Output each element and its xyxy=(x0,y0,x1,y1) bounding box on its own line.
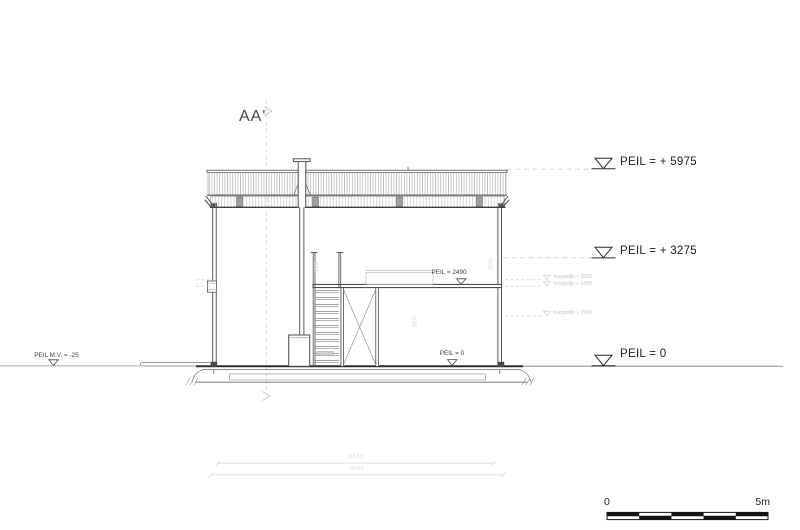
stove xyxy=(289,335,310,366)
roof xyxy=(205,167,509,208)
height-line-label-2600: hoogtelijn + 2600 xyxy=(554,275,592,280)
vertical-dim-stair: 1000 xyxy=(315,261,320,273)
foundation xyxy=(186,366,534,385)
scale-bar xyxy=(607,512,768,519)
section-label: AA' xyxy=(239,109,266,125)
braced-panel xyxy=(341,288,379,367)
section-cut-line xyxy=(263,100,273,401)
scale-bar-end-label: 5m xyxy=(755,497,770,508)
level-marker-icon xyxy=(595,158,612,168)
vertical-dim-wall: 2600 xyxy=(489,258,494,270)
level-label-upper: PEIL = + 3275 xyxy=(620,246,697,258)
level-label-ground-interior: PEIL = 0 xyxy=(440,351,464,357)
section-linework xyxy=(0,0,800,530)
height-line-label-2400: hoogtelijn + 2400 xyxy=(554,282,592,287)
scale-bar-start-label: 0 xyxy=(604,497,610,508)
level-label-ground: PEIL = 0 xyxy=(620,349,666,361)
architectural-section-drawing: AA' PEIL = + 5975 PEIL = + 3275 PEIL = 0… xyxy=(0,0,800,530)
height-line-marker-icon xyxy=(544,282,551,287)
level-label-roof: PEIL = + 5975 xyxy=(620,157,697,169)
floor-edge-detail xyxy=(366,272,433,284)
height-line-marker-icon xyxy=(544,311,551,316)
level-leader-lines xyxy=(503,169,592,258)
vertical-dim-room: 2400 xyxy=(413,316,418,328)
height-line-marker-icon xyxy=(544,275,551,280)
level-label-ground-left: PEIL M.V. = -25 xyxy=(34,352,78,358)
height-line-label-1500: hoogtelijn + 1500 xyxy=(554,311,592,316)
first-floor-slab xyxy=(313,271,502,288)
level-marker-icon xyxy=(595,355,612,365)
level-marker-icon xyxy=(49,360,58,366)
width-dim-inner: 8540 xyxy=(349,455,364,462)
level-marker-icon xyxy=(448,360,457,366)
width-dim-outer: 9060 xyxy=(350,467,365,474)
level-marker-icon xyxy=(595,247,612,257)
level-marker-icon xyxy=(457,279,466,285)
level-label-floor-interior: PEIL = 2490 xyxy=(431,269,466,275)
